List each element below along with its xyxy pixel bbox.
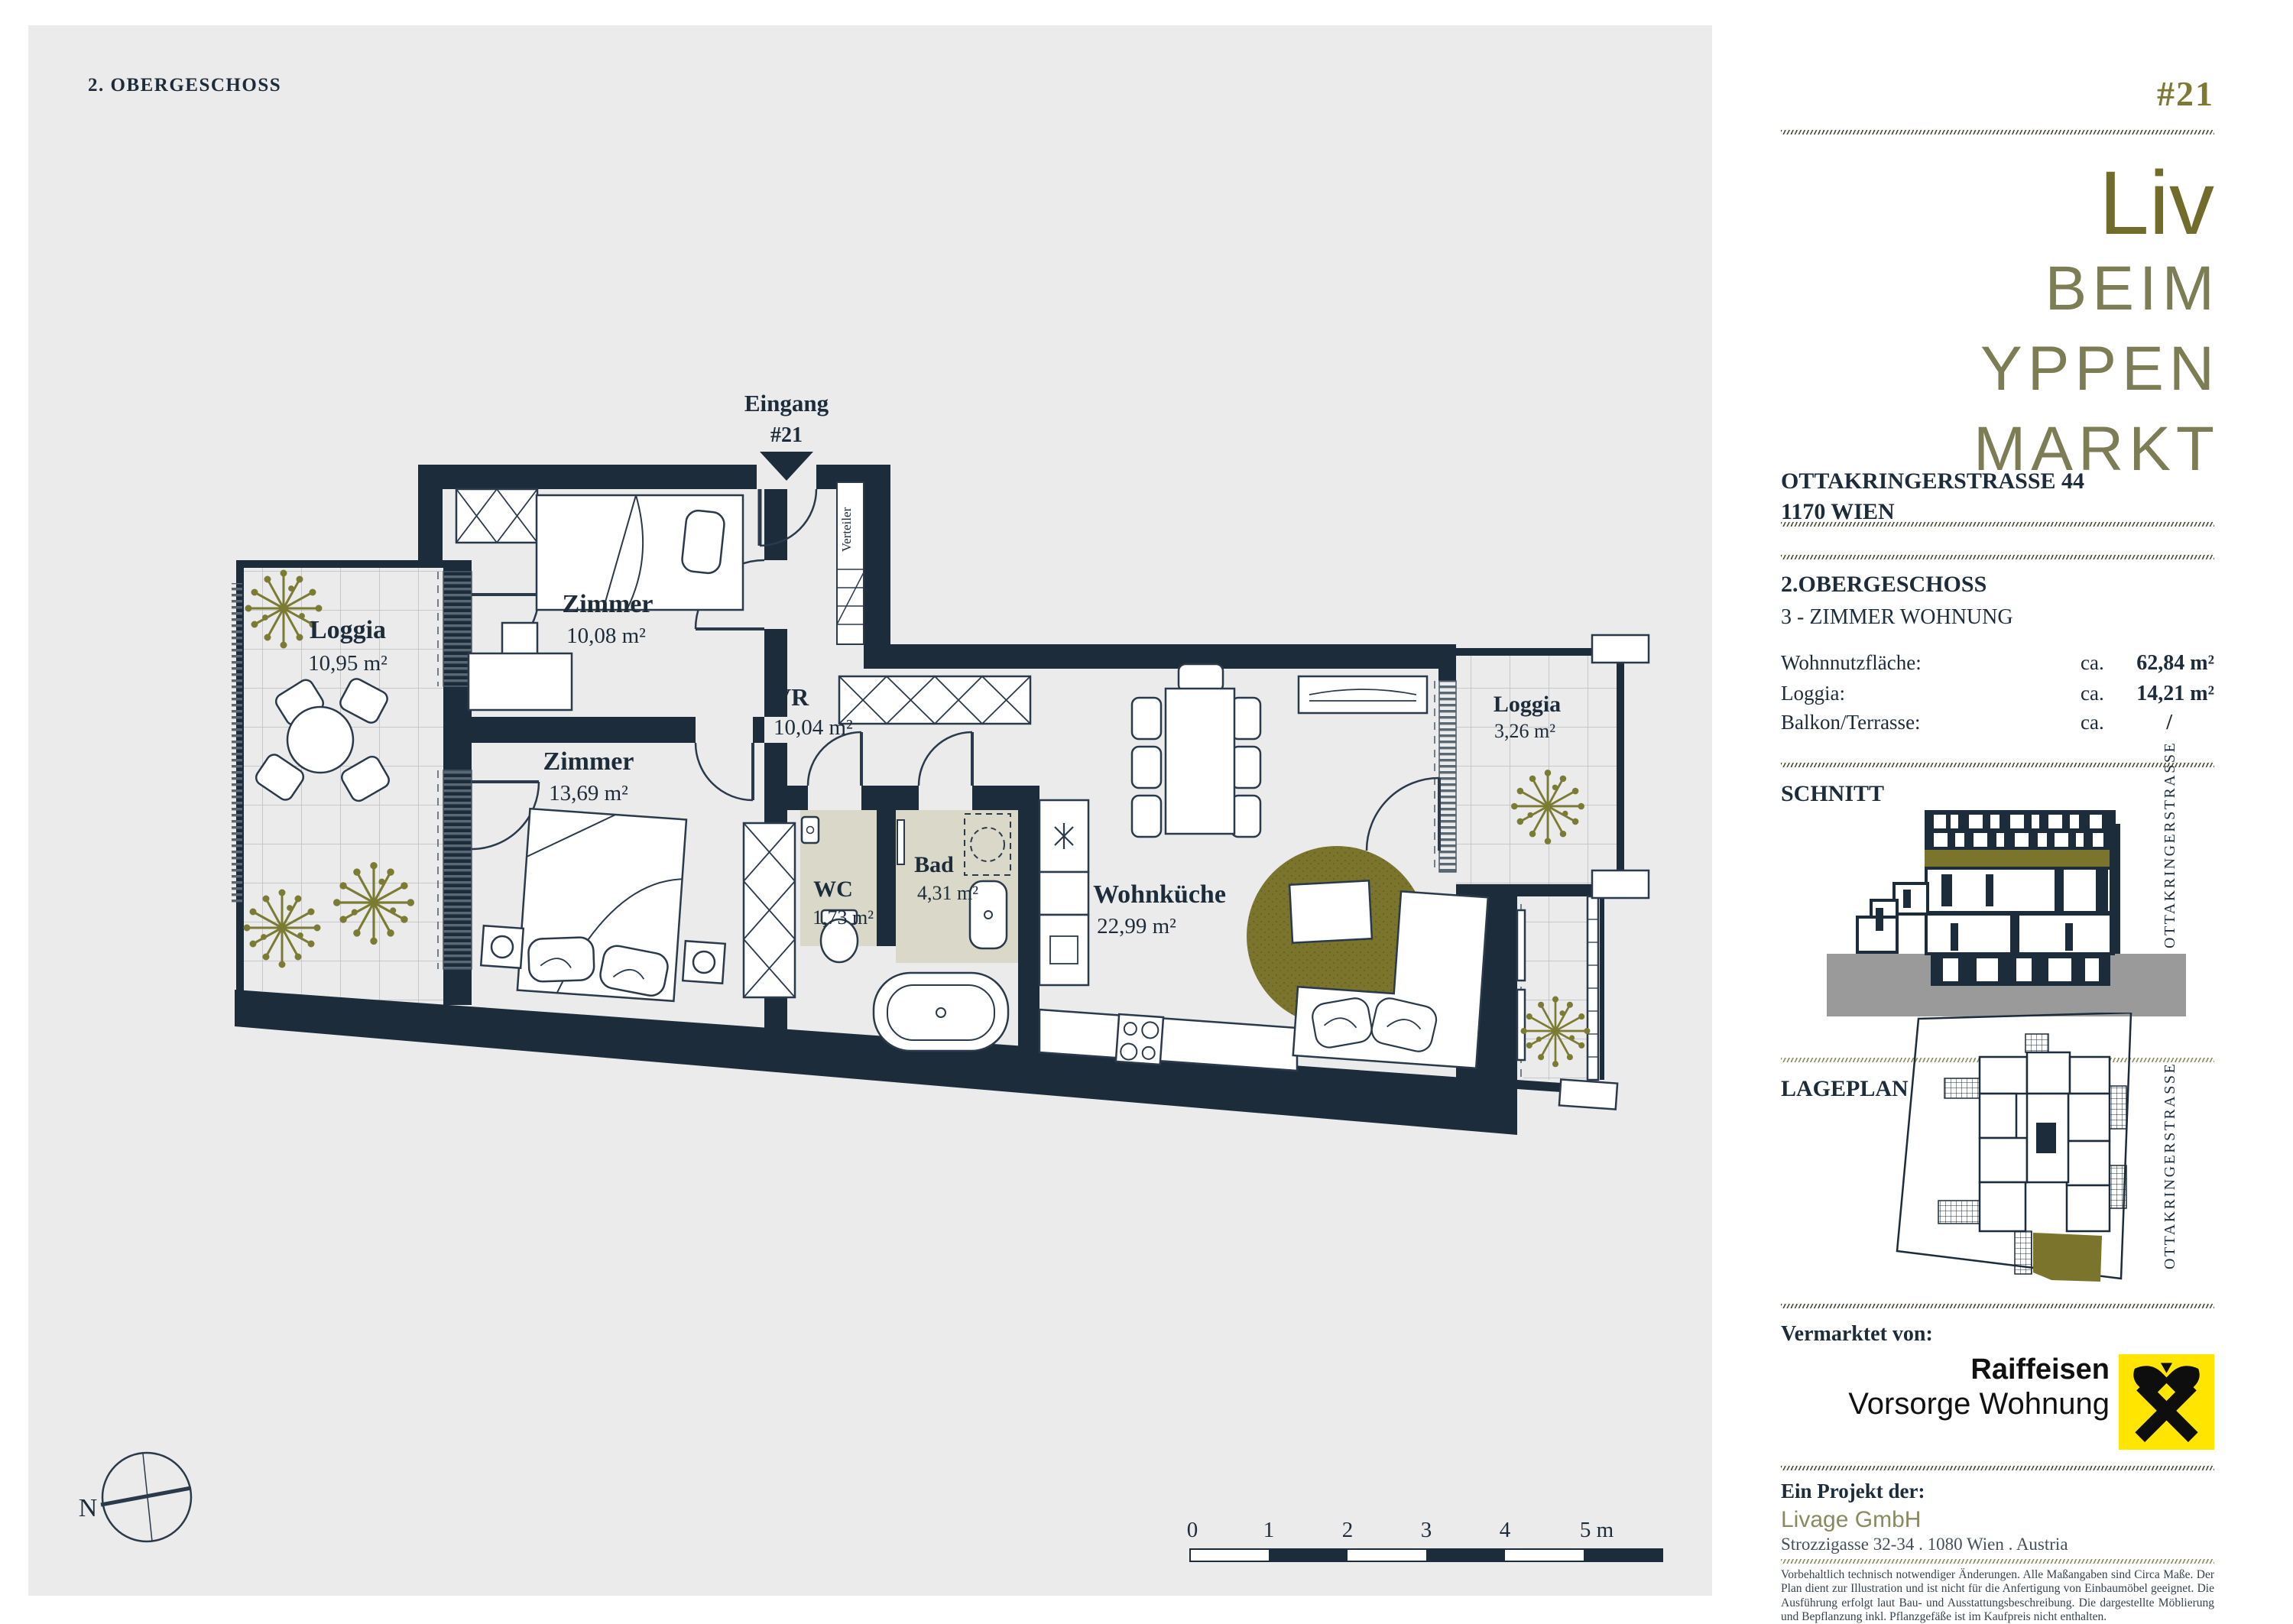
room-area-wc: 1,73 m² (812, 906, 874, 929)
divider (1781, 1304, 2214, 1308)
svg-text:4: 4 (1500, 1518, 1511, 1542)
marketed-by-label: Vermarktet von: (1781, 1322, 1933, 1347)
project-logo: Liv BEIM YPPEN MARKT (1781, 157, 2214, 490)
divider (1781, 555, 2214, 559)
highlighted-floor (1925, 850, 2116, 868)
double-bed-icon (517, 809, 686, 1001)
floor-subtitle: 3 - ZIMMER WOHNUNG (1781, 605, 2013, 630)
svg-text:1: 1 (1263, 1518, 1275, 1542)
divider (1781, 130, 2214, 135)
divider (1781, 1466, 2214, 1470)
room-label-zimmer-2: Zimmer (543, 747, 634, 776)
divider (1781, 1559, 2214, 1564)
logo-line-beim: BEIM (1781, 249, 2220, 329)
project-label: Ein Projekt der: (1781, 1480, 1925, 1503)
wardrobe2-icon (744, 823, 795, 997)
hall-wardrobe-icon (839, 676, 1030, 724)
floor-plan-panel: 2. OBERGESCHOSS (28, 25, 1712, 1596)
entrance-arrow-icon (760, 452, 813, 481)
desk-icon (469, 623, 572, 710)
schnitt-drawing (1827, 809, 2201, 1023)
project-address: Strozzigasse 32-34 . 1080 Wien . Austria (1781, 1535, 2068, 1554)
dining-set-icon (1132, 664, 1260, 837)
address-line1: OTTAKRINGERSTRASSE 44 (1781, 466, 2214, 497)
loggia-right-floor (1456, 656, 1617, 884)
loggia-railing-hatch (232, 583, 242, 904)
room-area-loggia-left: 10,95 m² (308, 651, 388, 676)
room-label-loggia-left: Loggia (310, 616, 386, 644)
floorplan-sheet: { "page": {"floor_label": "2. OBERGESCHO… (0, 0, 2293, 1621)
floor-plan-drawing: 2. OBERGESCHOSS (28, 25, 1712, 1596)
raiffeisen-gable-cross-icon (2119, 1354, 2214, 1454)
lageplan-street-label: OTTAKRINGERSTRASSE (2162, 1055, 2179, 1276)
svg-text:2: 2 (1342, 1518, 1354, 1542)
address-block: OTTAKRINGERSTRASSE 44 1170 WIEN (1781, 466, 2214, 527)
sideboard-icon (1299, 676, 1427, 713)
room-area-zimmer-1: 10,08 m² (566, 624, 646, 648)
verteiler-closet: Verteiler (837, 482, 864, 644)
room-label-loggia-right: Loggia (1494, 692, 1561, 717)
highlighted-unit (2033, 1233, 2102, 1282)
svg-text:0: 0 (1187, 1518, 1198, 1542)
logo-line-liv: Liv (1781, 157, 2214, 249)
entrance-unit: #21 (770, 423, 803, 447)
entrance-label: Eingang (744, 390, 829, 417)
room-area-bad: 4,31 m² (917, 882, 978, 904)
room-area-loggia-right: 3,26 m² (1494, 720, 1555, 742)
room-label-vr: VR (774, 683, 809, 711)
room-area-vr: 10,04 m² (774, 715, 853, 740)
divider (1781, 763, 2214, 767)
raiffeisen-wordmark: Raiffeisen Vorsorge Wohnung (1781, 1354, 2110, 1421)
unit-number: #21 (1987, 73, 2214, 114)
wardrobe-icon (456, 489, 537, 543)
disclaimer-text: Vorbehaltlich technisch notwendiger Ände… (1781, 1568, 2214, 1624)
room-label-zimmer-1: Zimmer (563, 590, 654, 618)
room-label-bad: Bad (914, 852, 954, 877)
logo-line-yppen: YPPEN (1781, 329, 2220, 410)
floor-title: 2.OBERGESCHOSS (1781, 572, 1987, 598)
metric-row-wohnnutzflaeche: Wohnnutzfläche: ca. 62,84 m² (1781, 651, 2214, 676)
scale-bar: 0 1 2 3 4 5 m (1187, 1518, 1662, 1561)
metric-row-balkon: Balkon/Terrasse: ca. / (1781, 711, 2214, 735)
room-label-wc: WC (813, 877, 853, 902)
room-label-wohnkueche: Wohnküche (1093, 880, 1226, 909)
room-area-zimmer-2: 13,69 m² (549, 781, 628, 806)
metric-row-loggia: Loggia: ca. 14,21 m² (1781, 682, 2214, 706)
project-company: Livage GmbH (1781, 1507, 1921, 1533)
compass-icon: N (79, 1453, 191, 1541)
compass-label: N (79, 1494, 98, 1522)
coffee-table-icon (1289, 880, 1372, 942)
svg-text:3: 3 (1421, 1518, 1432, 1542)
verteiler-label: Verteiler (839, 507, 854, 552)
room-area-wohnkueche: 22,99 m² (1097, 914, 1176, 938)
address-line2: 1170 WIEN (1781, 497, 2214, 527)
schnitt-street-label: OTTAKRINGERSTRASSE (2162, 730, 2179, 959)
schnitt-title: SCHNITT (1781, 781, 1884, 807)
plan-floor-title: 2. OBERGESCHOSS (88, 75, 281, 96)
svg-text:5 m: 5 m (1580, 1518, 1614, 1542)
